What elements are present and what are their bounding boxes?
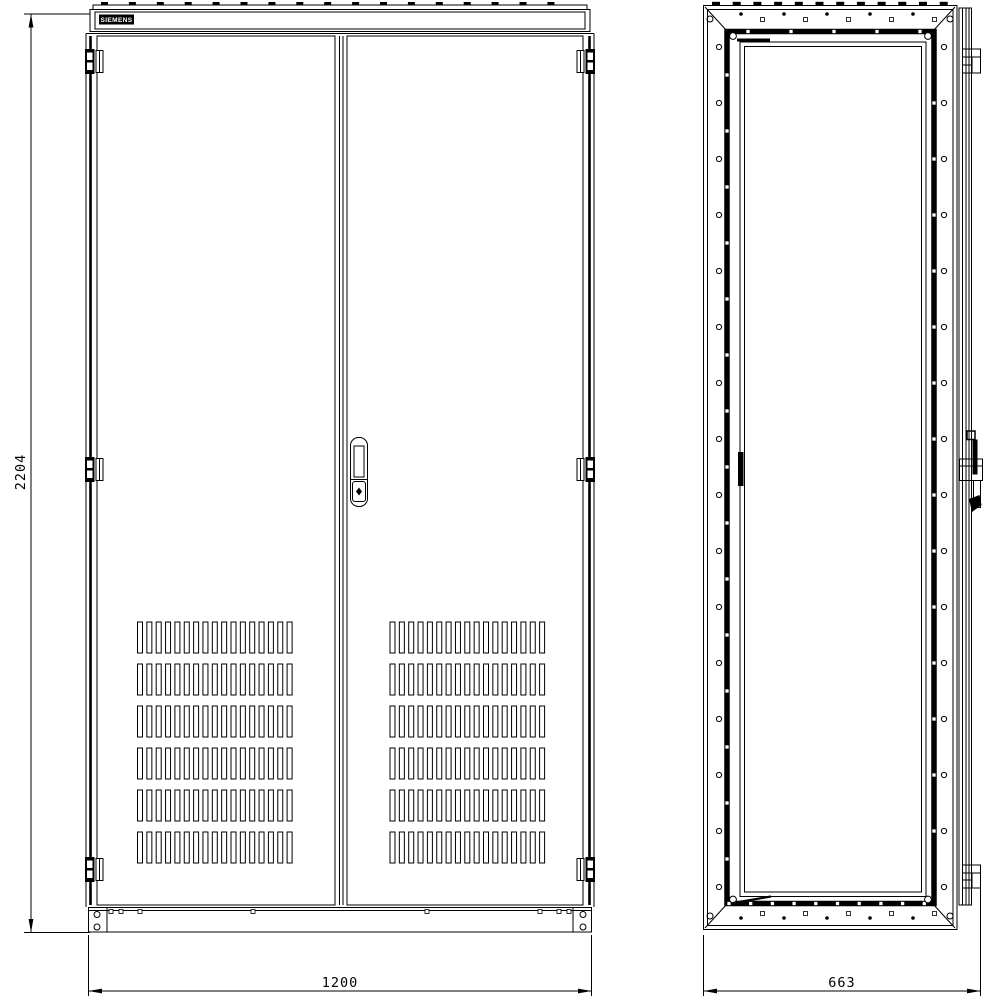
vent-slot [166,622,171,653]
handle-profile-grip [969,495,982,512]
vent-slot [427,664,432,695]
vent-slot [166,790,171,821]
gasket-hole [725,185,729,189]
corner-fastener-hole [947,913,953,919]
vent-slot [502,622,507,653]
vent-slot [540,748,545,779]
fastener-hole [941,492,946,497]
vent-slot [427,748,432,779]
vent-slot [399,664,404,695]
arrowhead-left-icon [704,989,718,994]
gasket-hole [932,549,936,553]
fastener-hole [716,884,721,889]
vent-slot [390,832,395,863]
gasket-hole [932,269,936,273]
vent-slot [259,706,264,737]
vent-slot [222,622,227,653]
plinth-hole [94,912,100,918]
vent-slot [512,832,517,863]
gasket-hole [725,521,729,525]
arrowhead-down-icon [29,919,34,933]
fastener-dot [739,12,743,16]
vent-slot [203,706,208,737]
vent-slot [268,790,273,821]
plinth-hole [119,910,123,914]
vent-slot [512,664,517,695]
vent-slot [484,832,489,863]
arrowhead-right-icon [578,989,592,994]
vent-slot [493,664,498,695]
roof-tab [464,2,471,5]
vent-slot [474,832,479,863]
vent-slot [521,706,526,737]
vent-slot [147,832,152,863]
plinth-hole [557,910,561,914]
vent-slot [268,664,273,695]
vent-slot [175,790,180,821]
enclosure-technical-drawing: SIEMENS [0,0,1000,1000]
vent-slot [259,832,264,863]
vent-slot [278,706,283,737]
roof-tab [816,2,824,5]
vent-slot [409,664,414,695]
vent-slot [212,706,217,737]
vent-slot [147,748,152,779]
roof-tab [774,2,782,5]
gasket-hole [789,30,793,34]
roof-tab [101,2,108,5]
vent-slot [166,706,171,737]
hinge-cutout [87,63,93,71]
vent-slot [231,790,236,821]
vent-slot [138,622,143,653]
vent-slot [455,790,460,821]
fastener-hole [804,18,808,22]
vent-slot [399,622,404,653]
corner-brace [933,904,955,928]
fastener-hole [933,18,937,22]
vent-slot [278,664,283,695]
vent-slot [212,622,217,653]
fastener-hole [716,548,721,553]
arrowhead-up-icon [29,14,34,28]
gasket-hole [725,297,729,301]
vent-slot [222,706,227,737]
roof-tab [733,2,741,5]
vent-slot [231,664,236,695]
fastener-dot [739,916,743,920]
gasket-hole [725,745,729,749]
vent-slot [502,832,507,863]
vent-slot [399,832,404,863]
gasket-hole [932,605,936,609]
vent-slot [465,790,470,821]
fastener-hole [716,156,721,161]
fastener-hole [716,100,721,105]
vent-slot [530,832,535,863]
arrowhead-right-icon [967,989,981,994]
fastener-hole [804,912,808,916]
vent-slot [259,664,264,695]
vent-slot [512,706,517,737]
gasket-hole [836,902,840,906]
gasket-band [727,32,934,904]
fastener-hole [890,912,894,916]
hinge-cutout [588,461,594,469]
vent-slot [259,790,264,821]
vent-slot [418,706,423,737]
side-view [704,2,983,930]
vent-slot [530,790,535,821]
arrowhead-left-icon [89,989,103,994]
roof-tab [712,2,720,5]
vent-slot [240,706,245,737]
vent-slot [418,622,423,653]
roof-tab [520,2,527,5]
vent-slot [231,748,236,779]
vent-slot [240,748,245,779]
vent-slot [502,664,507,695]
roof-tab [436,2,443,5]
vent-slot [138,832,143,863]
frame-mounting-holes [707,12,953,920]
fastener-hole [716,268,721,273]
corner-brace [705,904,727,928]
vent-slot [278,748,283,779]
vent-slot [418,832,423,863]
vent-slot [418,748,423,779]
vent-slot [390,622,395,653]
vent-slot [437,664,442,695]
gasket-corner-hole [925,896,932,903]
plinth-hole [251,910,255,914]
vent-slot [231,832,236,863]
dimension-height-value: 2204 [13,454,29,491]
roof-tab [857,2,865,5]
gasket-hole [879,902,883,906]
fastener-hole [716,716,721,721]
vent-slot [138,748,143,779]
vent-slot [521,790,526,821]
interior-latch-bar [738,452,744,486]
door-edge [959,8,972,905]
lock-cylinder-icon [356,488,362,496]
vent-slot [222,790,227,821]
gasket-hole [932,829,936,833]
plinth [89,908,592,933]
front-header: SIEMENS [86,10,594,34]
vent-slot [399,706,404,737]
gasket-hole [725,465,729,469]
hinge-cutout [588,861,594,869]
fastener-hole [933,912,937,916]
vent-slot [502,748,507,779]
vent-slot [474,748,479,779]
plinth-hole [425,910,429,914]
vent-slot [175,622,180,653]
vent-slot [409,832,414,863]
gasket-hole [725,857,729,861]
vent-slot [212,748,217,779]
dimension-depth: 663 [704,868,981,996]
side-roof [712,2,948,5]
plinth-hole [94,924,100,930]
hinge-cutout [87,461,93,469]
fastener-hole [941,716,946,721]
vent-slot [268,748,273,779]
gasket-hole [832,30,836,34]
gasket-hole [932,213,936,217]
vent-slot [484,622,489,653]
fastener-hole [716,324,721,329]
vent-slot [194,748,199,779]
plinth-hole [109,910,113,914]
vent-slot [259,748,264,779]
vent-slot [446,832,451,863]
roof-tab [296,2,303,5]
gasket-corner-hole [925,33,932,40]
vent-slot [446,664,451,695]
roof-tab [836,2,844,5]
inner-panel-line [745,47,922,893]
vent-slot [138,706,143,737]
vent-grille-right [390,622,545,863]
fastener-dot [868,916,872,920]
vent-slot [175,664,180,695]
vent-slot [465,748,470,779]
vent-slot [240,790,245,821]
gasket-corner-hole [730,33,737,40]
vent-slot [147,706,152,737]
vent-slot [390,748,395,779]
door-handle [351,438,368,507]
gasket-hole [725,633,729,637]
vent-slot [427,706,432,737]
vent-slot [203,790,208,821]
roof-tab [241,2,248,5]
plinth-holes [94,910,586,931]
dimension-width-value: 1200 [322,975,359,991]
vent-slot [184,748,189,779]
vent-slot [493,748,498,779]
vent-slot [268,622,273,653]
roof-band [93,5,587,10]
fastener-hole [716,604,721,609]
vent-slot [147,664,152,695]
vent-slot [474,790,479,821]
vent-slot [240,622,245,653]
gasket-hole [725,73,729,77]
vent-slot [147,622,152,653]
plinth-hole [567,910,571,914]
fastener-hole [716,772,721,777]
vent-slot [184,790,189,821]
vent-slot [512,622,517,653]
vent-slot [156,748,161,779]
vent-slot [437,748,442,779]
roof-tab [408,2,415,5]
handle-profile-bar [973,440,978,475]
gasket-hole [792,902,796,906]
roof-tab [352,2,359,5]
fastener-hole [941,436,946,441]
vent-slot [474,664,479,695]
vent-slot [184,622,189,653]
vent-slot [278,832,283,863]
vent-slot [540,622,545,653]
vent-slot [409,790,414,821]
vent-slot [212,832,217,863]
fastener-dot [825,12,829,16]
hinge-cutout [588,471,594,479]
gasket-hole [725,129,729,133]
dimension-width: 1200 [89,935,592,996]
vent-slot [287,748,292,779]
vent-slot [203,622,208,653]
vent-slot [502,706,507,737]
vent-slot [156,706,161,737]
gasket-hole [725,353,729,357]
gasket-hole [932,773,936,777]
roof-tab [380,2,387,5]
roof-tab [898,2,906,5]
vent-slot [203,748,208,779]
vent-slot [484,706,489,737]
vent-slot [493,622,498,653]
roof-tab [213,2,220,5]
hinge-cutout [87,861,93,869]
gasket-hole [932,157,936,161]
vent-slot [222,832,227,863]
drawing-canvas: SIEMENS [0,0,1000,1000]
vent-slot [530,706,535,737]
vent-slot [250,622,255,653]
vent-slot [250,706,255,737]
fastener-hole [716,44,721,49]
vent-slot [212,790,217,821]
vent-slot [409,622,414,653]
gasket-frame [725,30,936,906]
handle-grip [354,446,364,477]
vent-slot [156,664,161,695]
vent-slot [156,622,161,653]
vent-slot [521,664,526,695]
fastener-hole [716,380,721,385]
fastener-dot [782,916,786,920]
vent-slot [521,622,526,653]
plinth-hole [138,910,142,914]
vent-slot [474,622,479,653]
vent-slot [138,664,143,695]
vent-slot [147,790,152,821]
gasket-hole [932,325,936,329]
dimension-depth-value: 663 [828,975,855,991]
vent-slot [212,664,217,695]
gasket-hole [932,381,936,385]
fastener-dot [911,12,915,16]
gasket-hole [901,902,905,906]
vent-slot [493,832,498,863]
vent-slot [484,664,489,695]
vent-slot [399,748,404,779]
roof-tab [753,2,761,5]
fastener-hole [941,268,946,273]
vent-slot [194,664,199,695]
fastener-hole [941,324,946,329]
gasket-hole [918,30,922,34]
hinge-cutout [588,53,594,61]
vent-slot [502,790,507,821]
plinth-hole [580,924,586,930]
fastener-hole [941,212,946,217]
vent-slot [427,832,432,863]
fastener-hole [941,156,946,161]
fastener-hole [716,492,721,497]
vent-slot [409,706,414,737]
roof-tab [157,2,164,5]
gasket-hole [725,577,729,581]
fastener-hole [716,436,721,441]
vent-slot [240,832,245,863]
fastener-dot [782,12,786,16]
vent-slot [250,664,255,695]
header-panel-inner [95,12,585,29]
side-inner-panel [733,40,926,903]
vent-slot [222,664,227,695]
vent-slot [465,664,470,695]
vent-slot [194,622,199,653]
vent-slot [484,748,489,779]
fastener-hole [761,18,765,22]
vent-slot [231,706,236,737]
vent-slot [465,706,470,737]
vent-slot [437,622,442,653]
vent-slot [418,790,423,821]
roof-tabs [712,2,948,5]
fastener-hole [847,18,851,22]
vent-slot [521,748,526,779]
fastener-dot [911,916,915,920]
gasket-hole [857,902,861,906]
vent-slot [184,664,189,695]
vent-slot [156,832,161,863]
fastener-hole [941,660,946,665]
vent-slot [250,832,255,863]
vent-slot [446,790,451,821]
vent-slot [530,748,535,779]
fastener-hole [941,884,946,889]
vent-slot [166,748,171,779]
door-edge-profile [959,8,983,905]
plinth-hole [538,910,542,914]
vent-slot [390,706,395,737]
vent-slot [175,706,180,737]
vent-slot [250,748,255,779]
fastener-hole [941,604,946,609]
gasket-hole [725,801,729,805]
hinge-cutout [87,871,93,879]
vent-slot [194,706,199,737]
roof-tab [878,2,886,5]
vent-slot [465,622,470,653]
vent-slot [278,790,283,821]
brand-label: SIEMENS [100,17,132,24]
vent-slot [156,790,161,821]
vent-slot [455,706,460,737]
vent-slot [521,832,526,863]
vent-slot [437,832,442,863]
vent-slot [512,790,517,821]
